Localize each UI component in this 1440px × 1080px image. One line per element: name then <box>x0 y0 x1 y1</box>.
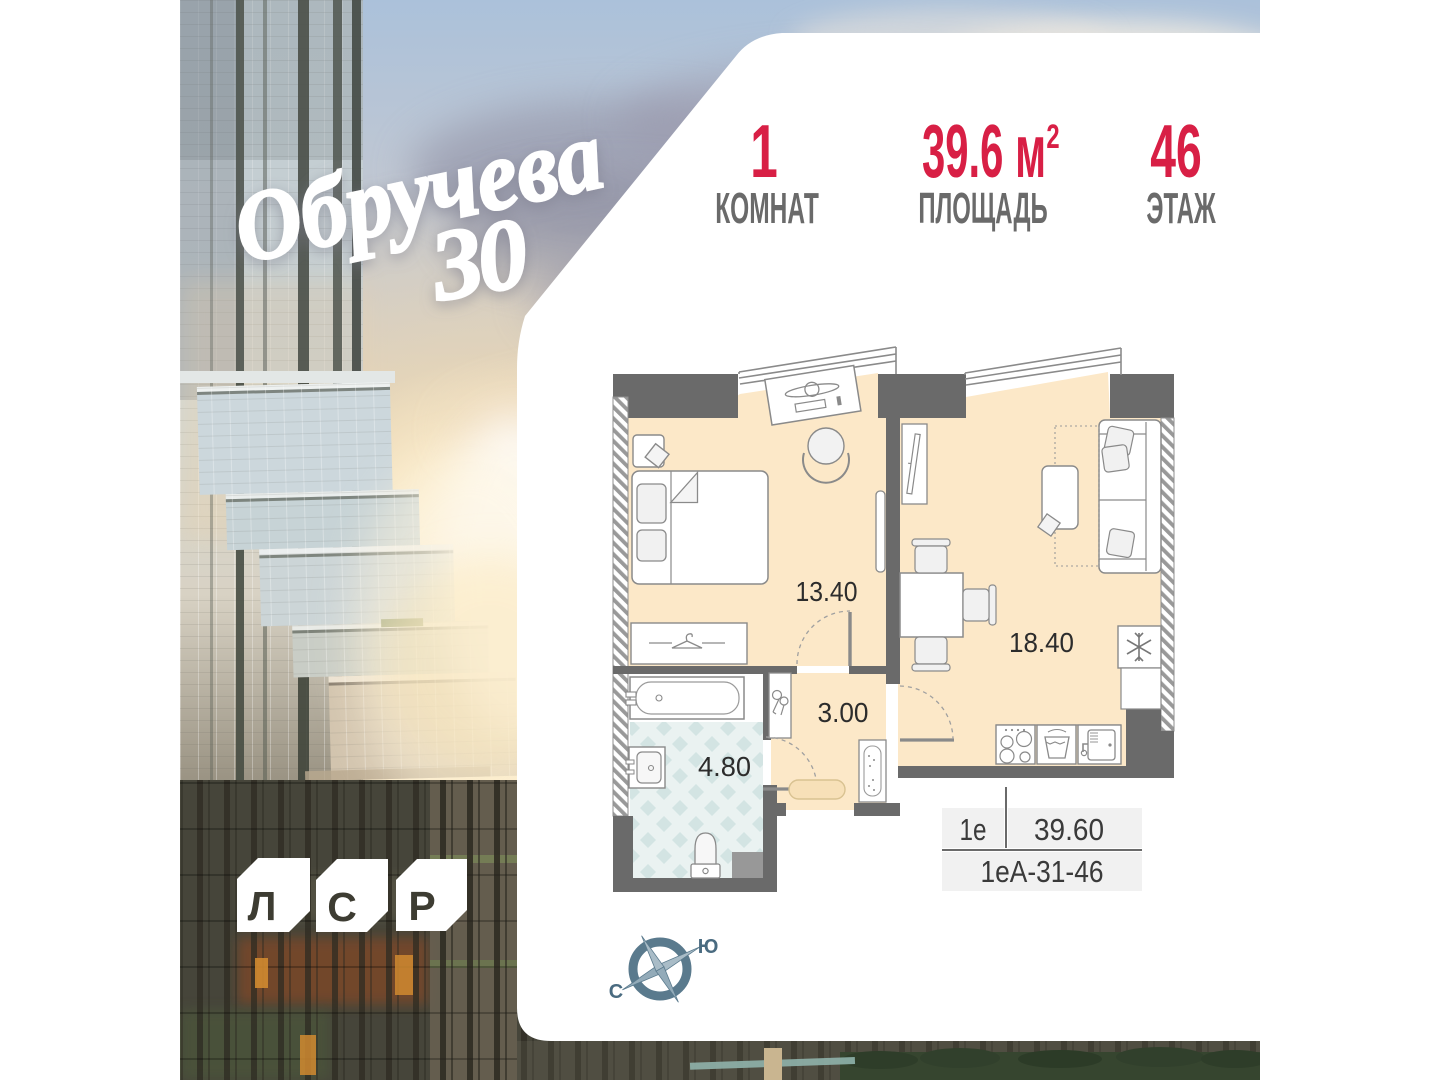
svg-text:1еА-31-46: 1еА-31-46 <box>981 854 1104 889</box>
svg-text:3.00: 3.00 <box>818 697 869 728</box>
svg-text:Л: Л <box>248 883 277 929</box>
svg-text:46: 46 <box>1150 110 1201 194</box>
svg-text:ПЛОЩАДЬ: ПЛОЩАДЬ <box>918 183 1047 233</box>
svg-text:Р: Р <box>408 883 435 929</box>
svg-text:39.60: 39.60 <box>1034 812 1104 847</box>
svg-text:4.80: 4.80 <box>698 751 751 782</box>
svg-text:ЭТАЖ: ЭТАЖ <box>1146 183 1215 233</box>
svg-text:39.6 м: 39.6 м <box>922 110 1046 194</box>
svg-text:2: 2 <box>1046 118 1059 156</box>
svg-text:18.40: 18.40 <box>1009 627 1074 658</box>
svg-text:13.40: 13.40 <box>796 576 858 607</box>
svg-text:С: С <box>327 884 357 930</box>
svg-text:С: С <box>609 981 623 1003</box>
svg-text:КОМНАТ: КОМНАТ <box>715 183 819 233</box>
svg-text:Ю: Ю <box>698 936 719 958</box>
svg-text:1: 1 <box>750 110 778 194</box>
svg-text:1е: 1е <box>960 812 987 847</box>
